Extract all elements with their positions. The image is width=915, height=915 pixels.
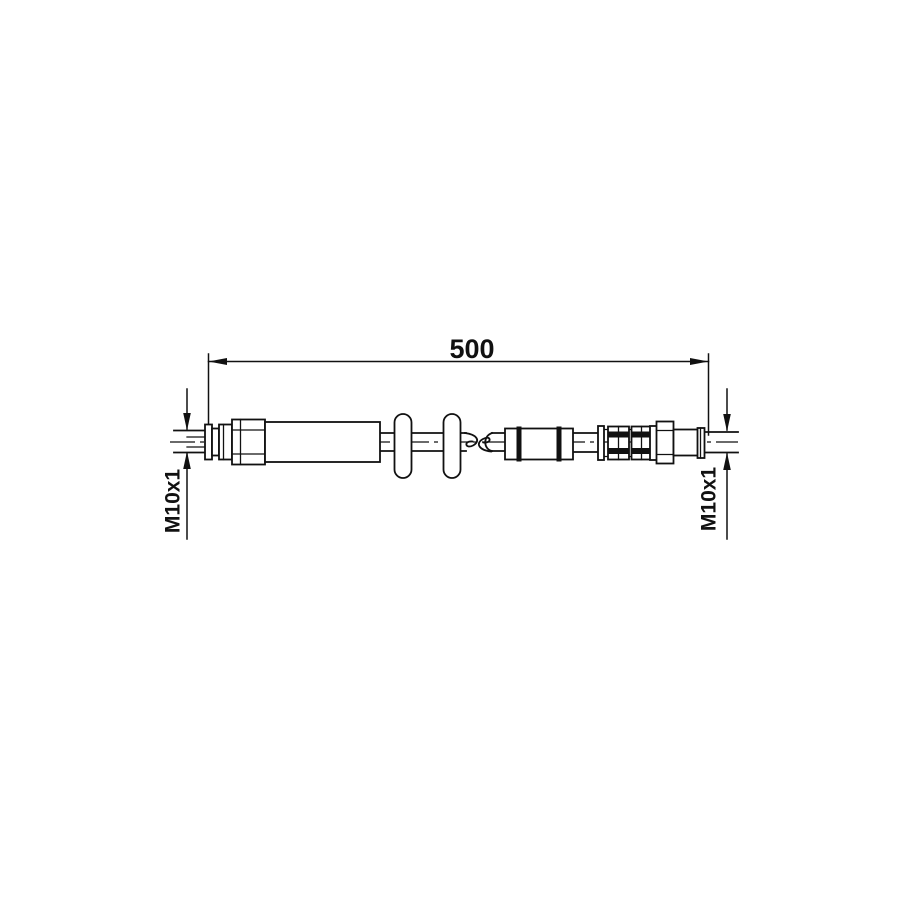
right-hex-nut (657, 422, 674, 464)
right-crimp-sleeve (505, 427, 573, 462)
spring-guard-left-plate (598, 426, 604, 460)
dimension-arrow-right (690, 358, 709, 365)
right-fitting (657, 422, 705, 464)
left-thread-arrow-bottom (183, 452, 191, 470)
left-hex-nut (232, 420, 265, 465)
left-crimp-sleeve (265, 422, 380, 462)
dimension-arrow-left (209, 358, 228, 365)
right-thread-body (674, 430, 699, 456)
right-thread-label: M10x1 (698, 467, 721, 532)
break-symbol (465, 433, 492, 452)
right-sleeve-body (505, 429, 573, 460)
spring-guard (598, 426, 657, 460)
left-thread-arrow-top (183, 413, 191, 431)
break-loop-top (465, 433, 477, 447)
left-fitting (205, 420, 380, 465)
technical-drawing-page: 500 M10x1 M10x1 (0, 0, 915, 915)
mounting-clip-1 (395, 414, 412, 478)
sleeve-band-2 (557, 427, 562, 462)
left-washer-1 (205, 425, 212, 460)
right-thread-arrow-top (723, 414, 731, 432)
mounting-clip-2 (444, 414, 461, 478)
left-thread-dimension: M10x1 (162, 389, 191, 539)
left-thread-label: M10x1 (162, 469, 185, 534)
length-dimension-label: 500 (449, 334, 494, 364)
left-washer-2 (212, 429, 219, 456)
right-thread-dimension: M10x1 (698, 389, 731, 539)
left-washer-3 (219, 425, 232, 460)
sleeve-band-1 (517, 427, 522, 462)
brake-hose-diagram: 500 M10x1 M10x1 (0, 0, 915, 915)
right-thread-arrow-bottom (723, 453, 731, 471)
